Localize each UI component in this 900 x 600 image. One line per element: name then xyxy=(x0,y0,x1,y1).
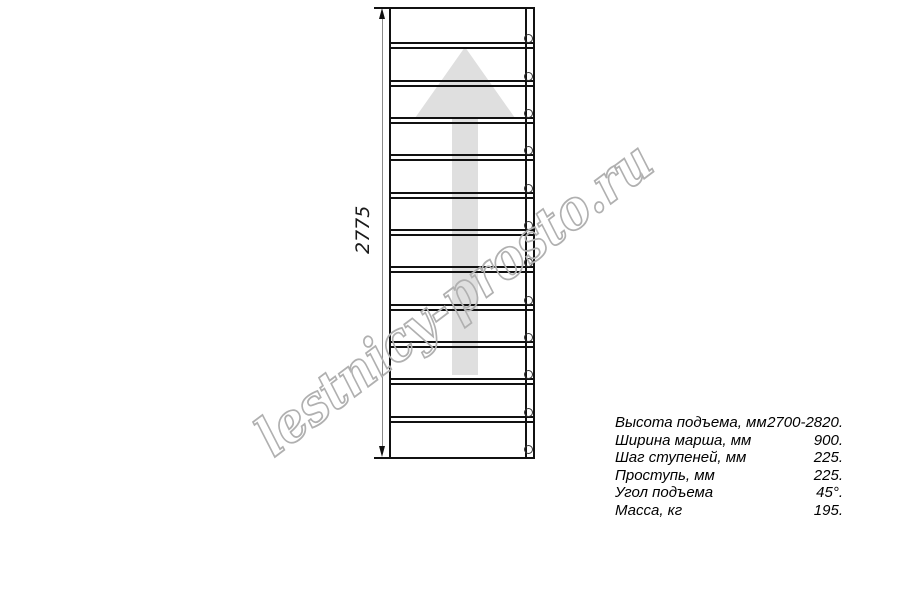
fastener-circle-icon xyxy=(524,184,533,193)
step-edge-line xyxy=(391,192,533,199)
dimension-line xyxy=(382,16,383,450)
fastener-circle-icon xyxy=(524,408,533,417)
step-edge-line xyxy=(391,154,533,161)
dimension-label: 2775 xyxy=(353,210,373,254)
fastener-circle-icon xyxy=(524,221,533,230)
step-edge-line xyxy=(391,266,533,273)
fastener-circle-icon xyxy=(524,296,533,305)
spec-label: Проступь, мм xyxy=(615,467,715,484)
step-edge-line xyxy=(391,304,533,311)
spec-row: Масса, кг 195. xyxy=(615,502,843,520)
spec-row: Проступь, мм 225. xyxy=(615,467,843,485)
spec-label: Масса, кг xyxy=(615,502,682,519)
dimension-extension-bottom xyxy=(374,457,390,459)
spec-label: Шаг ступеней, мм xyxy=(615,449,746,466)
spec-label: Угол подъема xyxy=(615,484,713,501)
spec-value: 225. xyxy=(814,467,843,484)
spec-row: Шаг ступеней, мм 225. xyxy=(615,449,843,467)
spec-table: Высота подъема, мм 2700-2820. Ширина мар… xyxy=(615,414,843,519)
fastener-circle-icon xyxy=(524,445,533,454)
dimension-arrow-down-icon xyxy=(379,446,385,457)
drawing-canvas: 2775 lestnicy-prosto.ru Высота подъема, … xyxy=(0,0,900,600)
spec-value: 2700-2820. xyxy=(767,414,843,431)
spec-value: 900. xyxy=(814,432,843,449)
step-edge-line xyxy=(391,416,533,423)
step-edge-line xyxy=(391,341,533,348)
stair-flight xyxy=(389,7,535,459)
spec-value: 45°. xyxy=(816,484,843,501)
step-edge-line xyxy=(391,117,533,124)
spec-value: 225. xyxy=(814,449,843,466)
step-edge-line xyxy=(391,378,533,385)
spec-label: Высота подъема, мм xyxy=(615,414,767,431)
dimension-arrow-up-icon xyxy=(379,8,385,19)
spec-row: Ширина марша, мм 900. xyxy=(615,432,843,450)
step-edge-line xyxy=(391,42,533,49)
spec-row: Угол подъема 45°. xyxy=(615,484,843,502)
fastener-circle-icon xyxy=(524,109,533,118)
fastener-circle-icon xyxy=(524,146,533,155)
fastener-circle-icon xyxy=(524,72,533,81)
spec-row: Высота подъема, мм 2700-2820. xyxy=(615,414,843,432)
fastener-circle-icon xyxy=(524,34,533,43)
fastener-circle-icon xyxy=(524,370,533,379)
spec-label: Ширина марша, мм xyxy=(615,432,751,449)
spec-value: 195. xyxy=(814,502,843,519)
step-edge-line xyxy=(391,80,533,87)
step-edge-line xyxy=(391,229,533,236)
fastener-circle-icon xyxy=(524,258,533,267)
fastener-circle-icon xyxy=(524,333,533,342)
